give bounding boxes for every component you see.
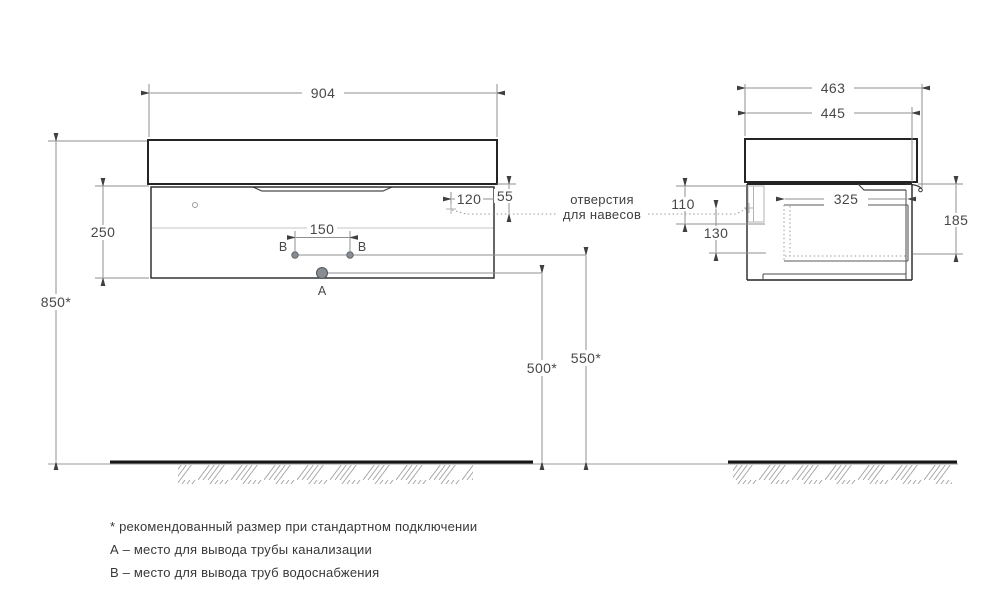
dim-inner-height-label: 185 — [944, 212, 969, 228]
hanger-hole-left — [193, 203, 198, 208]
callout-text-line2: для навесов — [563, 207, 641, 222]
dim-install-height-label: 850* — [41, 294, 72, 310]
footnote-recommended-size: * рекомендованный размер при стандартном… — [110, 519, 477, 534]
technical-drawing: 904 850* 250 120 55 — [0, 0, 1000, 615]
footnote-water-location: В – место для вывода труб водоснабжения — [110, 565, 379, 580]
front-countertop — [148, 140, 497, 184]
water-outlet-left — [292, 252, 298, 258]
dimension-hole-to-bottom-130: 130 — [700, 209, 766, 253]
floor — [48, 462, 958, 484]
dim-inner-depth-label: 325 — [834, 191, 859, 207]
dimension-hole-inset-120: 120 — [451, 191, 496, 207]
dimension-install-height-850: 850* — [35, 141, 147, 461]
callout-text-line1: отверстия — [570, 192, 634, 207]
wall-mount-bracket — [748, 186, 764, 222]
dim-bracket-height-label: 110 — [671, 196, 695, 212]
dim-body-height-label: 250 — [91, 224, 116, 240]
side-view-dimensions: 463 445 110 130 325 — [668, 80, 972, 254]
water-outlet-left-label: В — [279, 240, 287, 254]
dimension-width-904: 904 — [149, 84, 497, 137]
floor-hatching-right — [733, 465, 952, 484]
dim-water-spacing-label: 150 — [310, 221, 335, 237]
footnotes: * рекомендованный размер при стандартном… — [110, 519, 477, 580]
dimension-depth-body-445: 445 — [747, 105, 912, 182]
dim-water-height-label: 550* — [571, 350, 602, 366]
dimension-hole-drop-55: 55 — [494, 184, 516, 213]
dimension-water-spacing-150: 150 — [295, 221, 350, 251]
side-countertop — [745, 139, 917, 182]
dimension-inner-height-185: 185 — [913, 184, 972, 254]
dim-hole-inset-label: 120 — [457, 191, 482, 207]
side-handle-tip — [919, 188, 923, 192]
floor-hatching-left — [178, 465, 473, 484]
water-outlet-right — [347, 252, 353, 258]
dim-hole-drop-label: 55 — [497, 188, 513, 204]
dimension-depth-total-463: 463 — [745, 80, 922, 188]
dimension-body-height-250: 250 — [85, 186, 149, 278]
water-outlet-right-label: В — [358, 240, 366, 254]
dim-depth-total-label: 463 — [821, 80, 846, 96]
side-view — [745, 139, 922, 280]
callout-leader-left — [452, 210, 556, 214]
hanger-holes-callout: отверстия для навесов — [446, 192, 754, 222]
dim-drain-height-label: 500* — [527, 360, 558, 376]
installation-drawing-page: 904 850* 250 120 55 — [0, 0, 1000, 615]
drain-outlet — [317, 268, 328, 279]
side-drawer-box — [784, 205, 908, 261]
drain-outlet-label: А — [318, 284, 327, 298]
dimension-drain-height-500: 500* — [326, 273, 564, 461]
dim-width-label: 904 — [311, 85, 336, 101]
dim-depth-body-label: 445 — [821, 105, 846, 121]
front-view — [148, 140, 497, 278]
dim-hole-to-bottom-label: 130 — [704, 225, 729, 241]
footnote-drain-location: А – место для вывода трубы канализации — [110, 542, 372, 557]
dimension-water-height-550: 550* — [298, 255, 608, 461]
pipe-outlets: В В А — [279, 240, 366, 298]
